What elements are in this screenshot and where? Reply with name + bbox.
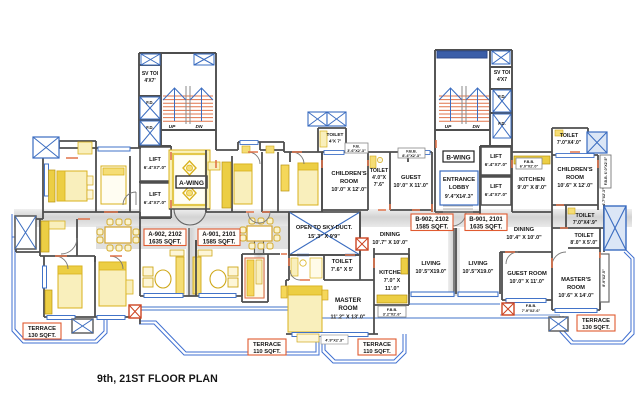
svg-text:A-WING: A-WING (179, 180, 204, 187)
svg-text:LIVING: LIVING (468, 261, 488, 267)
svg-text:6'.4"X7'.0": 6'.4"X7'.0" (144, 200, 166, 205)
svg-text:9'.4"X14'.3": 9'.4"X14'.3" (445, 194, 474, 200)
svg-text:4'X 7': 4'X 7' (329, 139, 341, 145)
svg-text:110 SQFT.: 110 SQFT. (253, 349, 281, 355)
svg-text:15'.3" X 9'9": 15'.3" X 9'9" (308, 234, 340, 240)
svg-text:F.B.B.: F.B.B. (406, 150, 417, 154)
svg-text:LIFT: LIFT (490, 154, 502, 160)
svg-text:TOILET: TOILET (560, 133, 579, 139)
svg-text:7'.9"X2'.6": 7'.9"X2'.6" (522, 309, 541, 313)
svg-text:OPEN TO SKY-DUCT.: OPEN TO SKY-DUCT. (296, 225, 353, 231)
svg-text:ROOM: ROOM (338, 305, 357, 312)
svg-text:B-901, 2101: B-901, 2101 (469, 216, 503, 223)
svg-text:SV TOI: SV TOI (494, 70, 511, 76)
svg-text:F.B.B. 6'.0"X2'.5": F.B.B. 6'.0"X2'.5" (604, 156, 608, 185)
svg-text:4'X7': 4'X7' (144, 78, 155, 84)
svg-text:10'.5"X19.0": 10'.5"X19.0" (416, 269, 447, 275)
svg-text:B-902, 2102: B-902, 2102 (415, 216, 449, 223)
svg-text:6'.0"X2'.0": 6'.0"X2'.0" (520, 165, 539, 169)
svg-text:11'.0": 11'.0" (385, 286, 399, 292)
svg-text:TOILET: TOILET (327, 132, 344, 138)
svg-text:4'.0"X: 4'.0"X (372, 175, 387, 181)
svg-text:LOBBY: LOBBY (449, 185, 469, 191)
svg-text:A-901, 2101: A-901, 2101 (202, 231, 236, 238)
svg-text:KITCHEN: KITCHEN (519, 177, 545, 183)
svg-text:LIVING: LIVING (421, 261, 441, 267)
svg-text:ROOM: ROOM (566, 175, 584, 181)
svg-text:6'.4"X7'.0": 6'.4"X7'.0" (144, 165, 166, 170)
svg-text:3'.2"X2'.6": 3'.2"X2'.6" (383, 313, 402, 317)
svg-text:10'.6" X 12'.0": 10'.6" X 12'.0" (557, 183, 593, 189)
svg-text:3'.6"X2'.3": 3'.6"X2'.3" (347, 149, 366, 153)
svg-text:130 SQFT.: 130 SQFT. (582, 325, 610, 331)
svg-text:F.D.: F.D. (146, 100, 153, 105)
svg-text:1585 SQFT.: 1585 SQFT. (416, 224, 449, 231)
svg-text:TERRACE: TERRACE (28, 326, 56, 332)
svg-text:F.D.: F.D. (146, 125, 153, 130)
svg-text:CHILDREN'S: CHILDREN'S (557, 167, 592, 173)
svg-text:F.D.: F.D. (498, 94, 505, 99)
svg-text:1585 SQFT.: 1585 SQFT. (203, 239, 236, 246)
svg-text:GUEST ROOM: GUEST ROOM (507, 271, 547, 277)
svg-text:10'.6" X 14'.0": 10'.6" X 14'.0" (558, 293, 594, 299)
svg-text:F.B.B.: F.B.B. (387, 308, 398, 312)
svg-text:ROOM: ROOM (567, 285, 585, 291)
svg-text:MASTER'S: MASTER'S (561, 277, 591, 283)
svg-text:DINING: DINING (380, 232, 401, 238)
svg-text:F.B.B.: F.B.B. (524, 160, 535, 164)
svg-text:ENTRANCE: ENTRANCE (443, 177, 475, 183)
svg-text:TOILET: TOILET (332, 259, 353, 265)
svg-text:9'.0" X 8'.0": 9'.0" X 8'.0" (517, 185, 547, 191)
svg-text:DN: DN (196, 124, 203, 130)
svg-text:F.B.: F.B. (353, 145, 360, 149)
svg-text:LIFT: LIFT (149, 192, 161, 198)
svg-text:DINING: DINING (514, 227, 535, 233)
svg-text:4'.9"X2'.3": 4'.9"X2'.3" (325, 339, 344, 343)
svg-text:F.D.: F.D. (498, 121, 505, 126)
svg-text:10'.0" X 11'.0": 10'.0" X 11'.0" (510, 279, 545, 285)
svg-text:UP: UP (445, 124, 452, 130)
svg-text:GUEST: GUEST (401, 175, 421, 181)
svg-text:F.B.B.: F.B.B. (526, 304, 537, 308)
svg-text:7'.6" X 5': 7'.6" X 5' (331, 267, 353, 273)
svg-text:TOILET: TOILET (575, 213, 595, 219)
svg-text:B-WING: B-WING (446, 155, 470, 162)
svg-text:LIFT: LIFT (149, 157, 161, 163)
svg-text:8'.4"X2'.3": 8'.4"X2'.3" (402, 154, 421, 158)
svg-text:TERRACE: TERRACE (582, 318, 610, 324)
svg-text:10'.4" X 10'.0": 10'.4" X 10'.0" (506, 235, 542, 241)
svg-text:6'.4"X7'.0": 6'.4"X7'.0" (485, 192, 507, 197)
svg-text:CHILDREN'S: CHILDREN'S (331, 171, 366, 177)
svg-text:130 SQFT.: 130 SQFT. (28, 333, 56, 339)
svg-text:7'.6": 7'.6" (374, 182, 385, 188)
svg-text:MASTER: MASTER (335, 297, 362, 304)
svg-text:11'.2" X 13'.0": 11'.2" X 13'.0" (331, 315, 366, 321)
svg-text:10'.0" X 11'.0": 10'.0" X 11'.0" (394, 183, 429, 189)
svg-text:TOILET: TOILET (370, 168, 389, 174)
svg-text:TOILET: TOILET (574, 233, 594, 239)
svg-text:4'.7"X2'.3": 4'.7"X2'.3" (602, 188, 606, 206)
svg-text:DN: DN (473, 124, 480, 130)
svg-text:SV TOI: SV TOI (142, 71, 159, 77)
svg-text:1635 SQFT.: 1635 SQFT. (470, 224, 503, 231)
svg-text:10'.5"X19.0": 10'.5"X19.0" (463, 269, 494, 275)
svg-text:4'X7: 4'X7 (497, 77, 507, 83)
svg-text:7'.0" X: 7'.0" X (384, 278, 401, 284)
svg-text:9th, 21ST FLOOR PLAN: 9th, 21ST FLOOR PLAN (97, 373, 218, 385)
svg-text:UP: UP (169, 124, 176, 130)
svg-text:10'.7" X 10'.0": 10'.7" X 10'.0" (372, 240, 408, 246)
svg-text:A-902, 2102: A-902, 2102 (148, 231, 182, 238)
svg-text:10'.0" X 12'.0": 10'.0" X 12'.0" (331, 187, 367, 193)
svg-text:1635 SQFT.: 1635 SQFT. (149, 239, 182, 246)
svg-text:7'.0"X4'.0": 7'.0"X4'.0" (557, 140, 582, 146)
svg-text:LIFT: LIFT (490, 184, 502, 190)
svg-text:8'.9"X2'.5": 8'.9"X2'.5" (602, 269, 606, 287)
svg-text:7'.0"X4'.9": 7'.0"X4'.9" (573, 220, 598, 226)
svg-text:TERRACE: TERRACE (363, 342, 391, 348)
svg-text:6'.4"X7'.0": 6'.4"X7'.0" (485, 162, 507, 167)
svg-text:TERRACE: TERRACE (253, 342, 281, 348)
svg-text:ROOM: ROOM (340, 179, 358, 185)
svg-text:110 SQFT.: 110 SQFT. (363, 349, 391, 355)
svg-text:8'.0" X 5'.0": 8'.0" X 5'.0" (570, 240, 598, 246)
